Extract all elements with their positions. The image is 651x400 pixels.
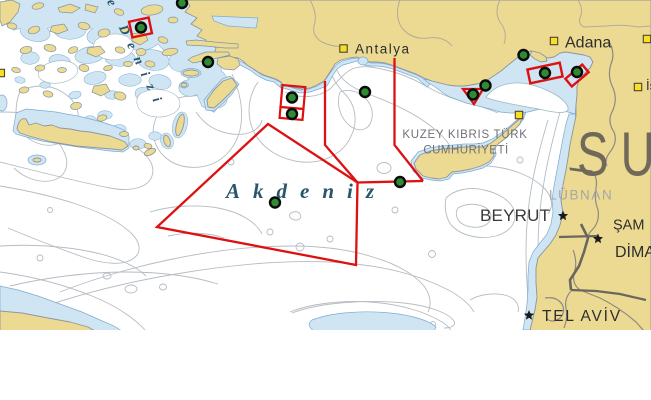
svg-text:LÜBNAN: LÜBNAN <box>549 188 613 203</box>
svg-text:Akdeniz: Akdeniz <box>224 179 387 203</box>
svg-text:BEYRUT: BEYRUT <box>480 206 550 225</box>
svg-text:İs: İs <box>646 78 651 93</box>
svg-text:ŞAM: ŞAM <box>613 218 644 234</box>
svg-text:KUZEY KIBRIS TÜRK: KUZEY KIBRIS TÜRK <box>402 129 527 141</box>
svg-text:CUMHURİYETİ: CUMHURİYETİ <box>423 144 508 157</box>
svg-text:DİMAŞK: DİMAŞK <box>615 242 651 261</box>
svg-text:SU: SU <box>577 119 651 189</box>
svg-text:TEL AVİV: TEL AVİV <box>542 307 622 325</box>
svg-text:Antalya: Antalya <box>355 42 411 57</box>
svg-text:Adana: Adana <box>565 35 611 52</box>
